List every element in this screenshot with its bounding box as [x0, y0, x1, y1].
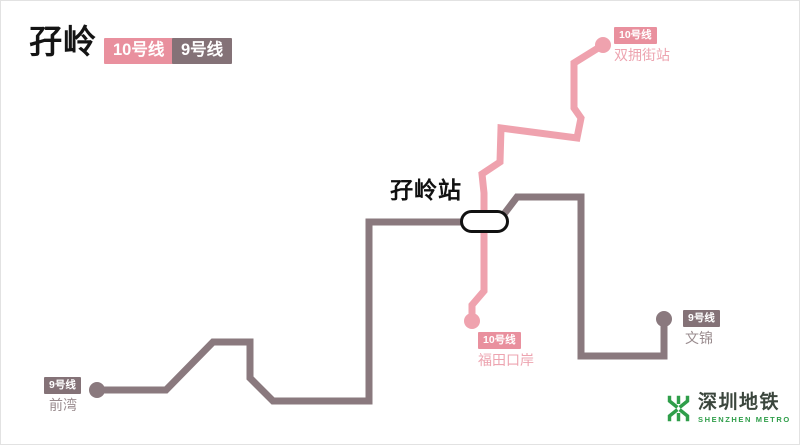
interchange-station-label: 孖岭站 — [390, 171, 462, 205]
logo-name-en: SHENZHEN METRO — [698, 415, 791, 424]
station-futiankouan: 10号线 福田口岸 — [478, 332, 534, 368]
metro-diagram-canvas: 孖岭 10号线 9号线 孖岭站 10号线 双拥街站 10号线 福田口岸 9号线 … — [0, 0, 800, 445]
station-name: 双拥街站 — [614, 47, 670, 64]
station-name: 前湾 — [49, 397, 77, 414]
station-name: 福田口岸 — [478, 352, 534, 369]
station-shuangyongjie: 10号线 双拥街站 — [614, 27, 670, 63]
station-line-badge: 9号线 — [683, 310, 720, 327]
station-qianwan: 9号线 前湾 — [44, 377, 81, 413]
shenzhen-metro-logo-icon — [665, 393, 692, 424]
station-line-badge: 10号线 — [614, 27, 657, 44]
station-wenjin: 9号线 文锦 — [683, 310, 720, 346]
station-line-badge: 9号线 — [44, 377, 81, 394]
interchange-station-marker — [462, 212, 508, 232]
line-9-route — [97, 197, 664, 401]
route-map-svg — [1, 1, 800, 445]
station-name: 文锦 — [685, 330, 713, 347]
line-9-terminus-wenjin-dot — [656, 311, 672, 327]
line-10-terminus-shuangyong-dot — [595, 37, 611, 53]
logo-name-cn: 深圳地铁 — [698, 393, 791, 414]
station-line-badge: 10号线 — [478, 332, 521, 349]
line-10-terminus-futian-dot — [464, 313, 480, 329]
shenzhen-metro-logo: 深圳地铁 SHENZHEN METRO — [665, 393, 791, 424]
line-9-terminus-qianwan-dot — [89, 382, 105, 398]
